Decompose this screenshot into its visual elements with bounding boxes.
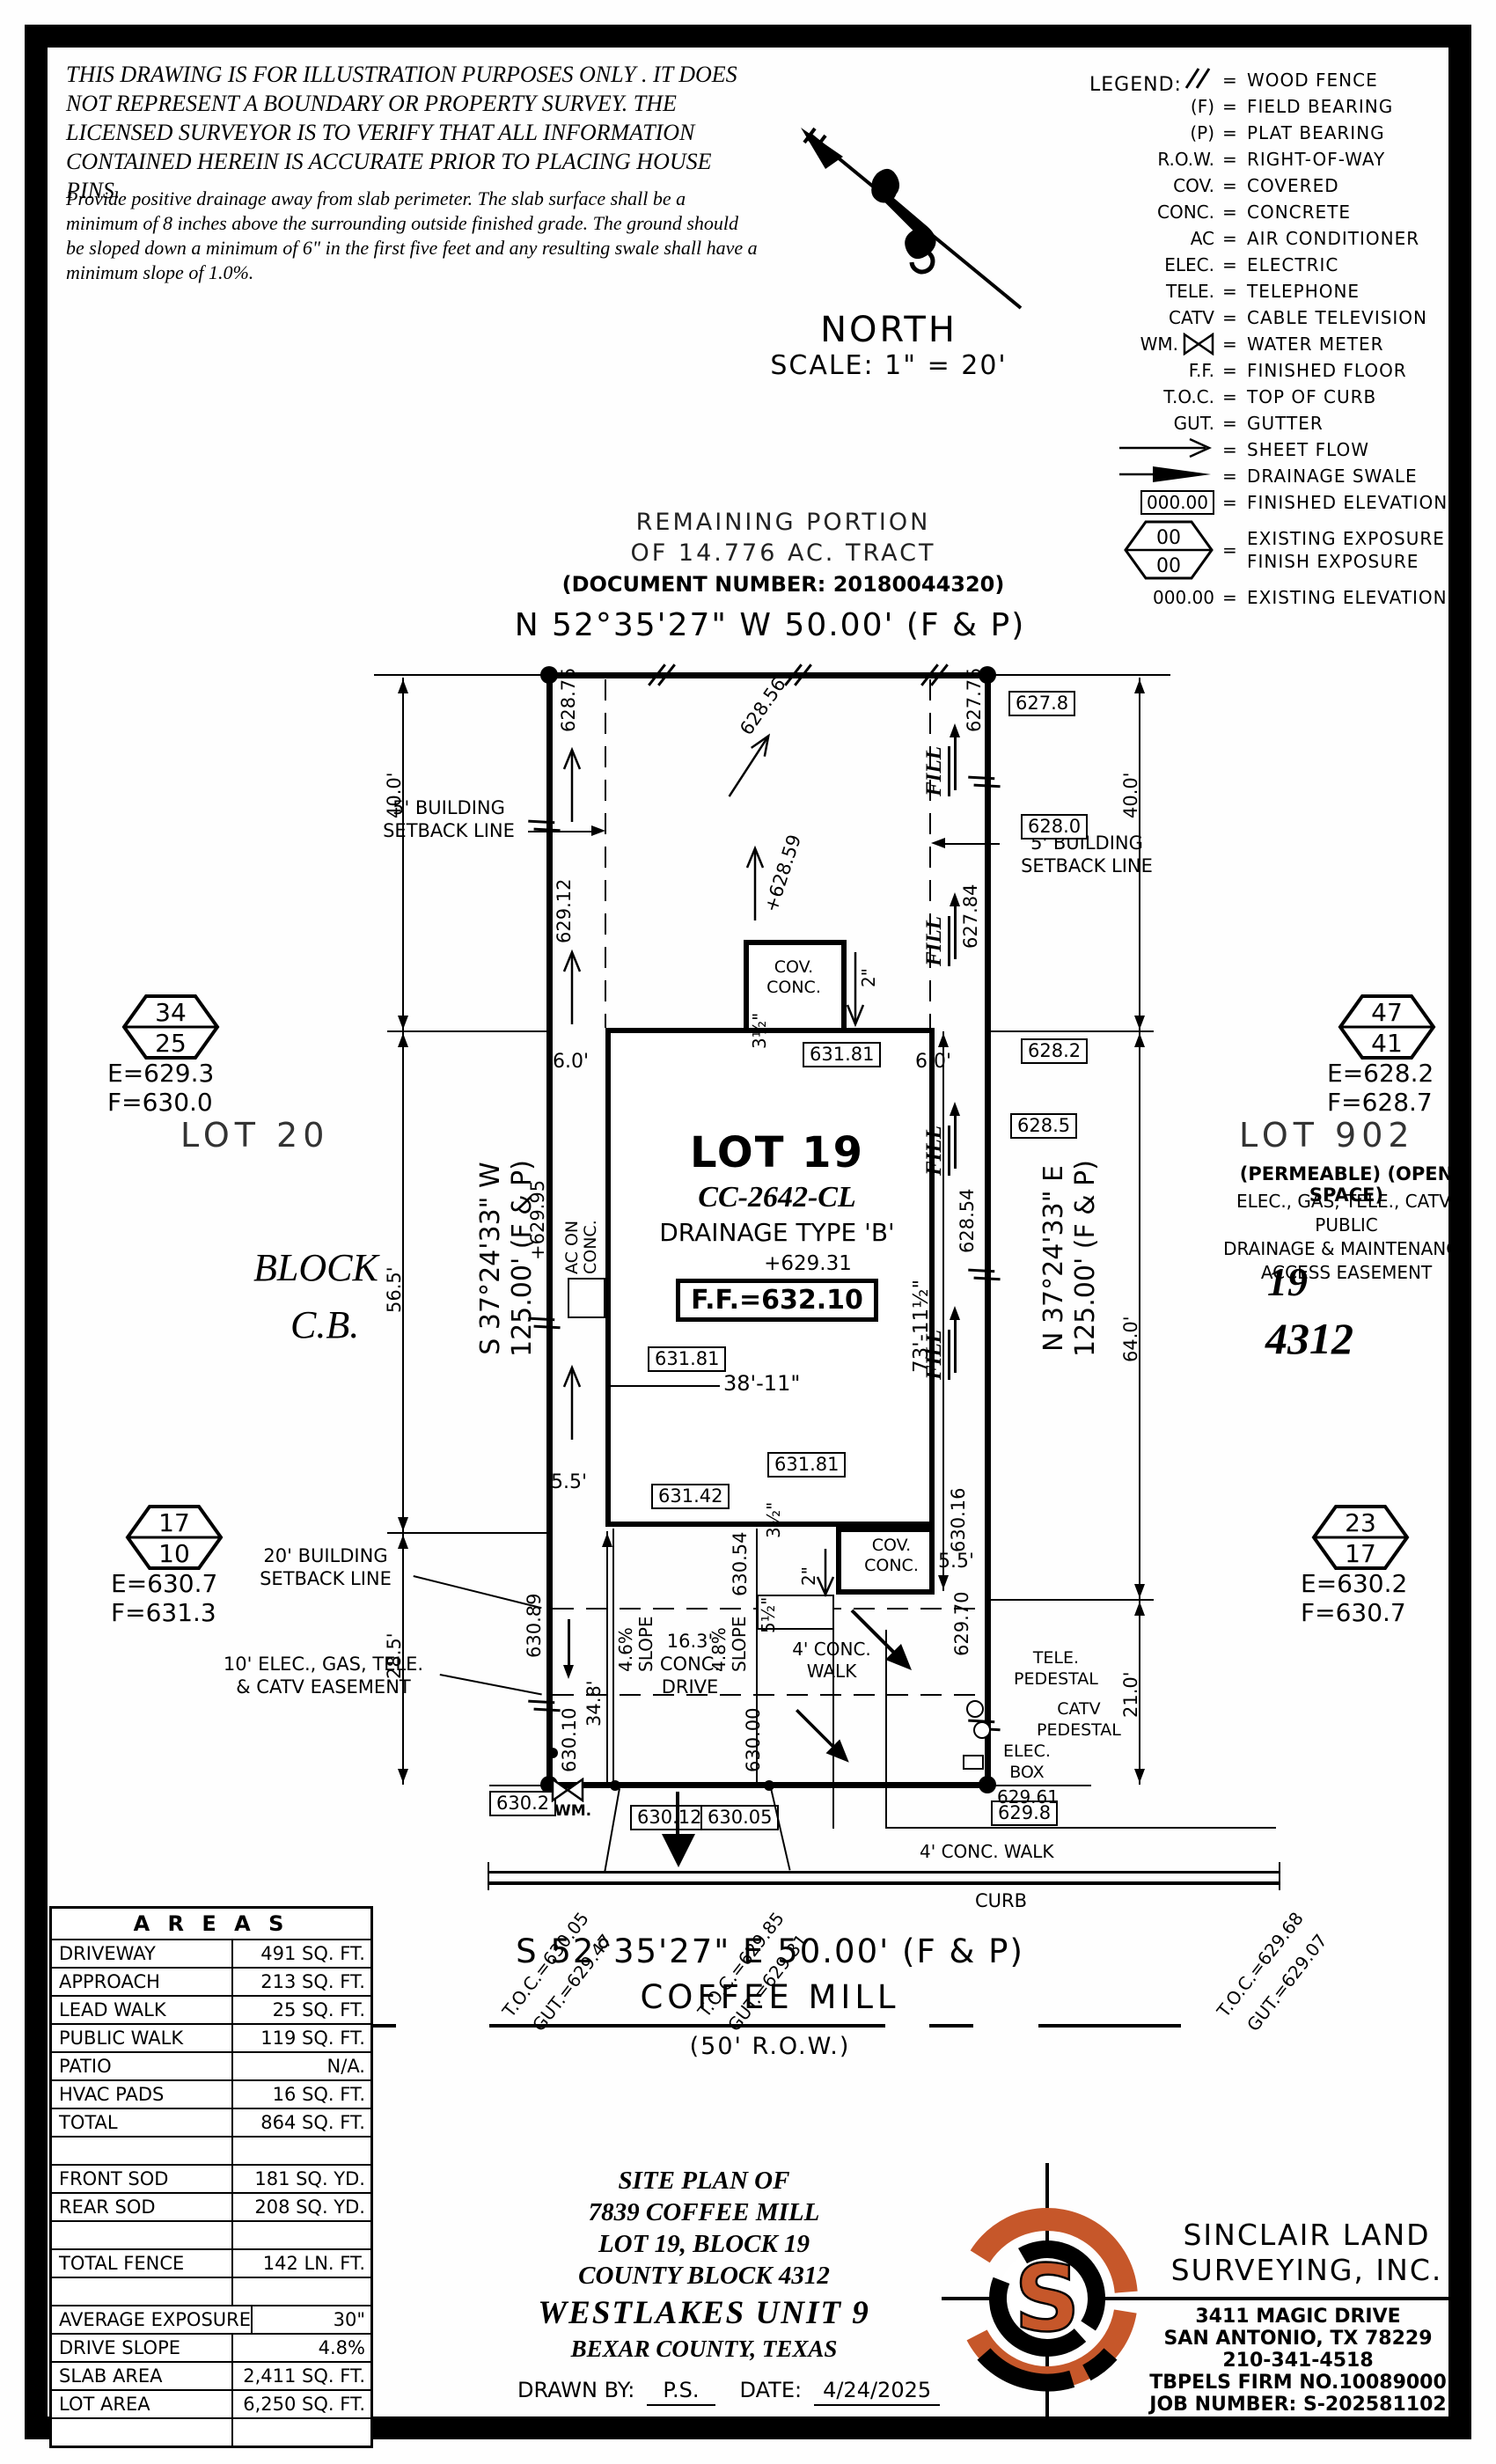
driveway-edge-right [756, 1529, 758, 1784]
legend-row-water-meter: WM. =WATER METER [1098, 331, 1384, 357]
approach-flare-left [604, 1788, 620, 1872]
svg-text:00: 00 [1156, 555, 1181, 577]
title-line-1: SITE PLAN OF [493, 2167, 915, 2196]
finished-floor-box: F.F.=632.10 [676, 1279, 878, 1322]
areas-table: A R E A S DRIVEWAY491 SQ. FT. APPROACH21… [49, 1906, 373, 2448]
street-centerline [489, 2024, 885, 2028]
easement-note: ELEC., GAS, TELE., CATV, PUBLICDRAINAGE … [1214, 1190, 1478, 1285]
legend-row-exposure: 00 00 = EXISTING EXPOSURE FINISH EXPOSUR… [1098, 517, 1445, 583]
tract-label-2: OF 14.776 AC. TRACT [563, 539, 1003, 567]
sheet-flow-icon [1118, 436, 1214, 459]
fill-arrow-line [954, 1320, 957, 1373]
setback-5ft-line-west [605, 679, 606, 1028]
drawn-by-row: DRAWN BY: P.S. DATE: 4/24/2025 [517, 2378, 940, 2406]
fence-hatch [970, 1262, 1007, 1299]
fill-arrow-head [950, 723, 960, 737]
catv-pedestal-symbol [973, 1721, 991, 1739]
street-row-label: (50' R.O.W.) [493, 2033, 1047, 2060]
table-row: AVERAGE EXPOSURE30" [52, 2305, 370, 2333]
extension-line-sw [489, 1785, 551, 1786]
slope-4-6-label: 4.6%SLOPE [616, 1616, 656, 1672]
easement-10ft-label: 10' ELEC., GAS, TELE.& CATV EASEMENT [207, 1653, 440, 1698]
svg-text:10: 10 [158, 1539, 190, 1568]
title-line-2: 7839 COFFEE MILL [493, 2198, 915, 2227]
dim-6-west: 6.0' [553, 1051, 589, 1073]
dim-arrow [1134, 1602, 1145, 1616]
dim-arrow [398, 679, 408, 693]
ee-630-16: 630.16 [949, 1488, 968, 1552]
table-row-blank [52, 2220, 370, 2248]
table-row: TOTAL FENCE142 LN. FT. [52, 2248, 370, 2277]
ee-629-95: +629.95 [528, 1180, 547, 1260]
table-row: DRIVE SLOPE4.8% [52, 2333, 370, 2361]
table-row: DRIVEWAY491 SQ. FT. [52, 1939, 370, 1967]
walk-edge [885, 1630, 887, 1829]
lot-19-block: LOT 19 CC-2642-CL DRAINAGE TYPE 'B' +629… [632, 1128, 922, 1322]
legend-row-field-bearing: (F)=FIELD BEARING [1098, 93, 1393, 120]
dim-line-west [402, 678, 404, 1785]
lot-19-title: LOT 19 [632, 1128, 922, 1177]
leader-line [414, 1575, 542, 1609]
dim-5-5-east: 5.5' [938, 1551, 974, 1573]
fill-arrow-head [950, 1102, 960, 1116]
dim-3-5-rear: 3½" [750, 1013, 769, 1049]
drainage-type: DRAINAGE TYPE 'B' [632, 1218, 922, 1247]
table-row: LEAD WALK25 SQ. FT. [52, 1995, 370, 2023]
legend-row-telephone: TELE.=TELEPHONE [1098, 278, 1360, 304]
areas-title: A R E A S [52, 1909, 370, 1939]
dim-arrow [398, 1033, 408, 1047]
tract-label-1: REMAINING PORTION [563, 509, 1003, 536]
legend-row-ac: AC=AIR CONDITIONER [1098, 225, 1419, 252]
table-row: HVAC PADS16 SQ. FT. [52, 2079, 370, 2108]
date-label: DATE: [740, 2378, 803, 2402]
swale-arrow-se [792, 1705, 854, 1767]
table-row-blank [52, 2277, 370, 2305]
boundary-line-east [985, 672, 991, 1786]
block-label: BLOCK [253, 1245, 378, 1290]
legend-row-catv: CATV=CABLE TELEVISION [1098, 304, 1427, 331]
plan-number: CC-2642-CL [632, 1181, 922, 1214]
ee-630-89: 630.89 [524, 1594, 544, 1658]
border-top [25, 25, 1471, 48]
swale-arrow-line [568, 1619, 570, 1665]
dim-56-5: 56.5' [385, 1266, 404, 1313]
patio-cov-conc-label: COV.CONC. [750, 957, 838, 998]
approach-swale-line [676, 1792, 679, 1837]
ee-630-10: 630.10 [560, 1708, 579, 1772]
svg-text:17: 17 [158, 1508, 190, 1537]
dim-arrow [1134, 1016, 1145, 1030]
catv-pedestal-label: CATVPEDESTAL [1037, 1698, 1121, 1741]
north-label: NORTH [792, 310, 986, 350]
svg-text:00: 00 [1156, 527, 1181, 549]
sinclair-logo: S [949, 2200, 1146, 2397]
legend-row-finished-elev: 000.00 =FINISHED ELEVATION [1098, 489, 1448, 516]
fe-631-81-porch: 631.81 [767, 1452, 846, 1478]
table-row: SLAB AREA2,411 SQ. FT. [52, 2361, 370, 2389]
drawn-by-label: DRAWN BY: [517, 2378, 634, 2402]
dim-arrow [602, 1533, 612, 1547]
fe-630-2: 630.2 [489, 1791, 556, 1816]
fill-label: FILL [922, 916, 950, 966]
legend-row-gutter: GUT.=GUTTER [1098, 410, 1324, 436]
table-row: APPROACH213 SQ. FT. [52, 1967, 370, 1995]
dim-21: 21.0' [1121, 1671, 1140, 1718]
legend-row-covered: COV.=COVERED [1098, 172, 1339, 199]
water-meter-icon [1183, 333, 1214, 356]
porch-cov-conc-label: COV.CONC. [852, 1536, 931, 1576]
dim-arrow [398, 1769, 408, 1783]
exposure-values-1: E=629.3F=630.0 [107, 1059, 214, 1117]
dim-tick [991, 1030, 1154, 1032]
walk-edge [832, 1630, 834, 1829]
svg-text:47: 47 [1371, 998, 1403, 1027]
legend-row-toc: T.O.C.=TOP OF CURB [1098, 384, 1376, 410]
street-centerline [1038, 2024, 1181, 2028]
ac-on-conc-label: AC ONCONC. [563, 1220, 600, 1274]
node-dot [610, 1780, 620, 1791]
legend-row-row: R.O.W.=RIGHT-OF-WAY [1098, 146, 1385, 172]
dim-arrow [938, 1033, 949, 1047]
block-cb-label: C.B. [290, 1302, 359, 1347]
dim-arrow [938, 1575, 949, 1589]
north-arrow-icon [774, 123, 1047, 317]
bearing-north-line: N 52°35'27" W 50.00' (F & P) [493, 607, 1047, 643]
svg-text:17: 17 [1345, 1539, 1376, 1568]
svg-text:34: 34 [155, 998, 187, 1027]
water-meter-icon [551, 1778, 584, 1802]
ee-627-75: 627.75 [964, 668, 984, 732]
drawn-by-value: P.S. [647, 2378, 715, 2406]
title-line-5: WESTLAKES UNIT 9 [493, 2294, 915, 2332]
ee-629-70: 629.70 [952, 1592, 972, 1656]
fe-628-5: 628.5 [1010, 1113, 1077, 1139]
dim-line-38 [607, 1385, 720, 1387]
title-line-3: LOT 19, BLOCK 19 [493, 2230, 915, 2259]
fill-label: FILL [922, 1126, 950, 1176]
dim-3-5-front: 3½" [764, 1502, 783, 1538]
svg-text:23: 23 [1345, 1508, 1376, 1537]
table-row-blank [52, 2136, 370, 2164]
table-row: REAR SOD208 SQ. YD. [52, 2192, 370, 2220]
setback-5ft-label-west: 5' BUILDINGSETBACK LINE [370, 796, 528, 842]
dim-38-11: 38'-11" [723, 1371, 800, 1396]
sheet-flow-arrow-down [815, 1547, 836, 1600]
logo-s-letter: S [1015, 2245, 1081, 2352]
drainage-note: Provide positive drainage away from slab… [66, 187, 761, 285]
sheet-flow-arrow-down [845, 950, 866, 1030]
dim-arrow [1134, 679, 1145, 693]
fence-hatch [970, 769, 1007, 806]
elec-box-label: ELEC.BOX [1003, 1741, 1051, 1783]
block-19-label: 19 [1267, 1258, 1308, 1305]
curb-end-tick [1279, 1862, 1280, 1890]
site-plan-sheet: THIS DRAWING IS FOR ILLUSTRATION PURPOSE… [0, 0, 1496, 2464]
leader-arrow [591, 825, 605, 836]
pad-elevation: +629.31 [693, 1252, 922, 1275]
node-dot [764, 1780, 774, 1791]
fe-628-0: 628.0 [1021, 814, 1088, 840]
fe-630-05: 630.05 [700, 1805, 779, 1830]
slope-4-8-label: 4.8%SLOPE [709, 1616, 750, 1672]
approach-swale-head [662, 1834, 695, 1867]
node-dot [547, 1748, 558, 1758]
ac-pad [568, 1278, 605, 1318]
dim-arrow [398, 1016, 408, 1030]
scale-label: SCALE: 1" = 20' [730, 350, 1047, 381]
fence-hatch [656, 662, 682, 688]
dim-tick [387, 1030, 550, 1032]
finished-elevation-sample: 000.00 [1140, 490, 1214, 515]
fe-627-8: 627.8 [1008, 691, 1075, 716]
svg-text:25: 25 [155, 1029, 187, 1058]
dim-arrow [1134, 1584, 1145, 1598]
tele-pedestal-symbol [966, 1700, 984, 1718]
sheet-flow-arrow [561, 744, 583, 824]
fill-arrow-line [954, 906, 957, 959]
ee-628-75: 628.75 [559, 668, 578, 732]
ee-629-12: 629.12 [554, 879, 574, 943]
exposure-values-3: E=630.7F=631.3 [111, 1569, 217, 1627]
conc-walk-label: 4' CONC.WALK [783, 1639, 880, 1683]
title-block: SITE PLAN OF 7839 COFFEE MILL LOT 19, BL… [493, 2167, 915, 2363]
fe-630-12: 630.12 [630, 1805, 708, 1830]
curb-line [488, 1881, 1280, 1885]
dim-5-5in: 5½" [759, 1597, 778, 1633]
table-row: TOTAL864 SQ. FT. [52, 2108, 370, 2136]
fill-arrow-line [954, 1116, 957, 1169]
table-row: LOT AREA6,250 SQ. FT. [52, 2389, 370, 2417]
bearing-south-line: S 52°35'27" E 50.00' (F & P) [493, 1932, 1047, 1970]
ee-628-59: +628.59 [760, 832, 805, 914]
corner-pin-nw [540, 666, 558, 684]
leader-line [943, 843, 1000, 845]
dim-arrow [398, 1517, 408, 1531]
setback-5ft-line-east [929, 679, 931, 1028]
street-walk-label: 4' CONC. WALK [920, 1841, 1054, 1862]
title-line-6: BEXAR COUNTY, TEXAS [493, 2336, 915, 2363]
title-line-4: COUNTY BLOCK 4312 [493, 2262, 915, 2291]
fill-label: FILL [922, 746, 950, 796]
dim-arrow [1134, 1033, 1145, 1047]
ee-628-54: 628.54 [957, 1189, 977, 1253]
table-row: FRONT SOD181 SQ. YD. [52, 2164, 370, 2192]
lot-20-label: LOT 20 [180, 1116, 329, 1155]
legend-row-drainage-swale: =DRAINAGE SWALE [1098, 463, 1418, 489]
fe-631-42: 631.42 [651, 1484, 730, 1509]
date-value: 4/24/2025 [814, 2378, 940, 2406]
swale-arrow-head [563, 1665, 574, 1679]
leader-line [440, 1674, 542, 1695]
ee-630-54: 630.54 [730, 1532, 750, 1596]
wm-label: WM. [554, 1802, 591, 1820]
leader-line [528, 831, 591, 832]
ee-627-84: 627.84 [961, 884, 980, 949]
exposure-values-2: E=628.2F=628.7 [1327, 1059, 1434, 1117]
legend-row-concrete: CONC.=CONCRETE [1098, 199, 1351, 225]
border-left [25, 25, 48, 2439]
curb-label: CURB [975, 1890, 1027, 1911]
driveway-edge-left [612, 1529, 614, 1784]
fence-hatch [928, 662, 955, 688]
sheet-flow-arrow [561, 1362, 583, 1441]
fill-arrow-head [950, 1306, 960, 1320]
county-block-4312-label: 4312 [1265, 1313, 1353, 1364]
table-row-blank [52, 2417, 370, 2446]
disclaimer-text: THIS DRAWING IS FOR ILLUSTRATION PURPOSE… [66, 60, 744, 205]
easement-10ft-line [553, 1694, 986, 1696]
walk-front-edge [488, 1871, 1280, 1874]
sheet-flow-arrow-ne [719, 726, 780, 804]
exposure-hex-23-17: 23 17 [1311, 1504, 1410, 1571]
dim-64: 64.0' [1121, 1316, 1140, 1362]
sheet-flow-arrow [561, 947, 583, 1026]
dim-5-5-west: 5.5' [551, 1471, 587, 1493]
legend-row-plat-bearing: (P)=PLAT BEARING [1098, 120, 1385, 146]
street-name: COFFEE MILL [493, 1978, 1047, 2016]
wood-fence-icon [1176, 67, 1214, 90]
sheet-flow-arrow [744, 843, 766, 922]
dim-tick [387, 1532, 550, 1534]
public-walk-edge [885, 1827, 1276, 1829]
legend-row-sheet-flow: =SHEET FLOW [1098, 436, 1369, 463]
dim-line-73 [942, 1031, 944, 1591]
firm-name: SINCLAIR LAND SURVEYING, INC. [1162, 2218, 1452, 2288]
svg-text:41: 41 [1371, 1029, 1403, 1058]
setback-20ft-label: 20' BUILDINGSETBACK LINE [238, 1544, 414, 1590]
dim-34-8: 34.8' [584, 1680, 604, 1727]
exposure-hexagon-icon: 00 00 [1123, 519, 1214, 581]
exposure-hex-47-41: 47 41 [1338, 994, 1436, 1060]
legend-row-electric: ELEC.=ELECTRIC [1098, 252, 1338, 278]
fe-631-81-patio: 631.81 [803, 1042, 881, 1067]
fill-arrow-line [954, 737, 957, 790]
dim-arrow [1134, 1769, 1145, 1783]
table-row: PATION/A. [52, 2051, 370, 2079]
fill-label: FILL [922, 1330, 950, 1380]
legend-row-ff: F.F.=FINISHED FLOOR [1098, 357, 1407, 384]
ee-629-61: 629.61 [997, 1786, 1059, 1808]
exposure-values-4: E=630.2F=630.7 [1301, 1569, 1407, 1627]
fe-631-81-mid: 631.81 [648, 1346, 726, 1372]
dim-6-east: 6.0' [915, 1051, 951, 1073]
street-centerline [929, 2024, 973, 2028]
dim-tick [991, 1599, 1154, 1601]
dim-40-east: 40.0' [1121, 772, 1140, 818]
leader-arrow [931, 838, 945, 848]
tract-document-number: (DOCUMENT NUMBER: 20180044320) [537, 572, 1030, 597]
curb-end-tick [488, 1862, 489, 1890]
dim-line-34 [606, 1531, 608, 1783]
fe-628-2: 628.2 [1021, 1038, 1088, 1064]
legend-row-wood-fence: = WOOD FENCE [1098, 67, 1378, 93]
drainage-swale-icon [1118, 463, 1214, 486]
tele-pedestal-label: TELE.PEDESTAL [1014, 1647, 1098, 1690]
lot-902-label: LOT 902 [1239, 1116, 1415, 1155]
elec-box-symbol [963, 1755, 984, 1770]
fence-hatch [792, 662, 818, 688]
firm-address: 3411 MAGIC DRIVE SAN ANTONIO, TX 78229 2… [1144, 2306, 1452, 2416]
exposure-hex-17-10: 17 10 [125, 1504, 224, 1571]
table-row: PUBLIC WALK119 SQ. FT. [52, 2023, 370, 2051]
fill-arrow-head [950, 892, 960, 906]
legend-row-existing-elev: 000.00=EXISTING ELEVATION [1098, 584, 1448, 611]
ee-630-00: 630.00 [744, 1708, 763, 1772]
exposure-hex-34-25: 34 25 [121, 994, 220, 1060]
